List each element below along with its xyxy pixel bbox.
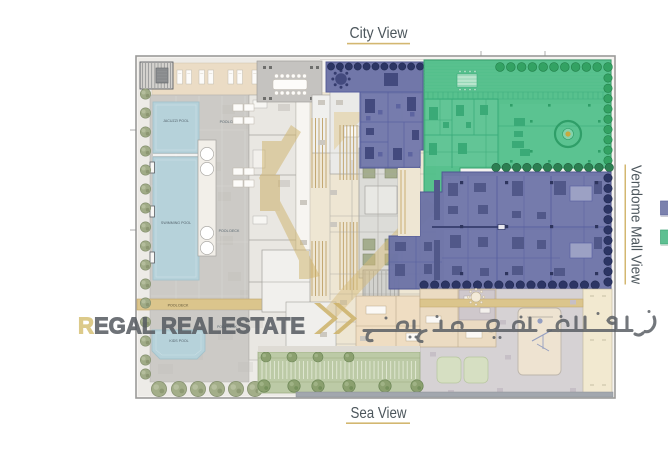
svg-text:KIDS POOL: KIDS POOL	[169, 339, 188, 343]
svg-text:Vendome Mall View: Vendome Mall View	[628, 165, 645, 284]
svg-text:REGAL REALESTATE: REGAL REALESTATE	[78, 313, 305, 339]
svg-text:Sea View: Sea View	[351, 405, 407, 422]
svg-text:POOL DECK: POOL DECK	[168, 304, 189, 308]
svg-text:POOL DECK: POOL DECK	[219, 229, 240, 233]
svg-text:SWIMMING POOL: SWIMMING POOL	[161, 221, 191, 225]
svg-text:City View: City View	[350, 25, 408, 42]
svg-text:JACUZZI POOL: JACUZZI POOL	[163, 119, 189, 123]
